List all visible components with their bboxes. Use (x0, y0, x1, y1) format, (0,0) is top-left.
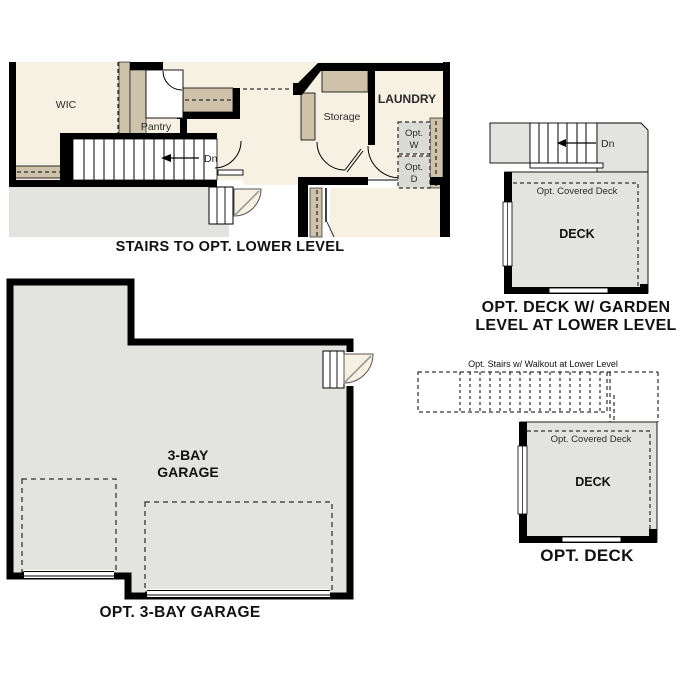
plan-stairs-lower-level: Dn Opt. W Opt. D (9, 62, 450, 255)
opt-stairs-note: Opt. Stairs w/ Walkout at Lower Level (468, 359, 618, 369)
caption-deck-garden-2: LEVEL AT LOWER LEVEL (475, 317, 676, 334)
room-label-storage: Storage (324, 111, 361, 123)
opt-washer-label-2: W (410, 140, 419, 151)
deck-step (562, 537, 621, 542)
deck-label: DECK (559, 227, 594, 241)
opt-washer-label-1: Opt. (405, 128, 423, 139)
deck-label: DECK (575, 475, 610, 489)
door-gap (217, 180, 243, 187)
plan-3-bay-garage: 3-BAY GARAGE OPT. 3-BAY GARAGE (10, 282, 373, 621)
deck-step (549, 288, 608, 293)
caption-stairs-lower-level: STAIRS TO OPT. LOWER LEVEL (116, 239, 345, 255)
stair-landing (490, 123, 530, 163)
covered-deck-label: Opt. Covered Deck (551, 434, 632, 445)
garage-outline (10, 282, 350, 596)
garage-label-1: 3-BAY (168, 447, 209, 463)
plan-deck-garden-level: Dn Opt. Covered Deck DECK OPT. DECK W/ G… (475, 123, 676, 334)
caption-opt-deck: OPT. DECK (540, 546, 634, 565)
opt-stairs (418, 372, 658, 422)
staircase (73, 139, 217, 180)
opt-dryer: Opt. D (398, 156, 430, 188)
entry-door (209, 187, 261, 224)
opt-washer: Opt. W (398, 122, 430, 154)
covered-deck-label: Opt. Covered Deck (537, 186, 618, 197)
opt-dryer-label-1: Opt. (405, 162, 423, 173)
stairs-down-label: Dn (204, 153, 218, 165)
laundry-door-gap (368, 178, 398, 185)
room-label-laundry: LAUNDRY (378, 92, 436, 106)
caption-deck-garden-1: OPT. DECK W/ GARDEN (482, 299, 671, 316)
garage-label-2: GARAGE (157, 464, 218, 480)
service-door (323, 351, 373, 388)
garage-below (9, 187, 229, 237)
room-below (330, 188, 440, 237)
door-leaf (218, 170, 243, 175)
stair-edge (530, 163, 603, 168)
room-label-pantry: Pantry (141, 121, 172, 133)
opt-dryer-label-2: D (411, 174, 418, 185)
floorplan-sheet: Dn Opt. W Opt. D (0, 0, 687, 687)
plan-opt-deck: Opt. Stairs w/ Walkout at Lower Level Op… (418, 359, 658, 565)
deck-down-label: Dn (601, 138, 615, 150)
caption-garage: OPT. 3-BAY GARAGE (99, 604, 260, 621)
room-label-wic: WIC (56, 99, 77, 111)
